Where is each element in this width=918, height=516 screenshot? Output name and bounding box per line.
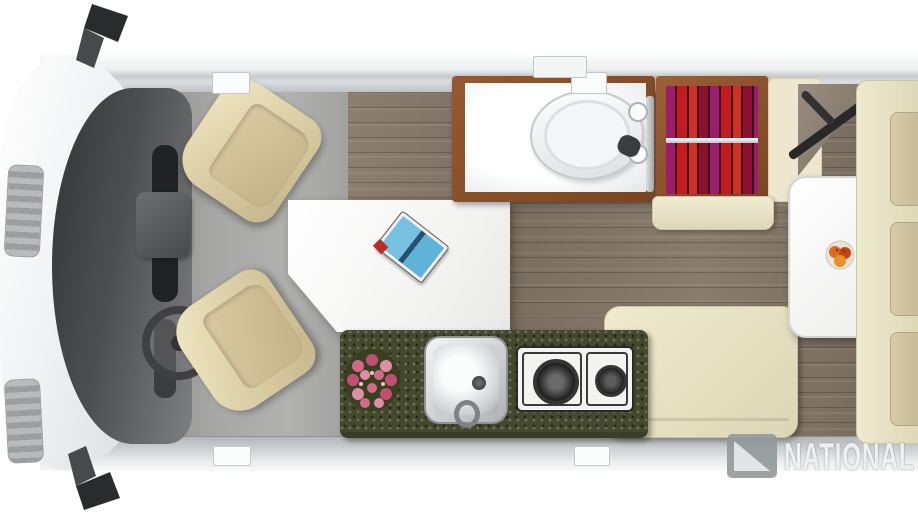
fruit-bowl-icon	[825, 240, 855, 270]
stove-cell	[522, 352, 582, 406]
side-mirror-icon	[70, 4, 140, 90]
flower-bouquet-icon	[343, 348, 401, 412]
faucet-icon	[454, 400, 480, 428]
stove-icon	[516, 346, 634, 412]
burner-right	[595, 365, 627, 397]
door-latch	[213, 446, 251, 466]
sink-icon	[424, 336, 508, 424]
bench-seat-back	[652, 196, 774, 230]
clothes-rail	[666, 138, 758, 143]
burner-left	[533, 359, 579, 405]
sofa-cushion	[890, 222, 918, 316]
door-latch	[574, 446, 610, 466]
rv-floorplan: NATIONAL	[0, 0, 918, 516]
engine-console	[136, 192, 190, 258]
grille-vent-icon	[4, 378, 44, 464]
grille-vent-icon	[4, 164, 45, 258]
watermark-triangle	[734, 441, 770, 471]
side-mirror-icon	[62, 424, 132, 510]
hanging-clothes-icon	[666, 86, 758, 194]
wardrobe	[656, 76, 768, 204]
sofa-cushion	[890, 332, 918, 426]
watermark-text: NATIONAL	[784, 436, 914, 480]
door-latch	[212, 72, 250, 94]
shower-knob-icon	[628, 102, 648, 122]
stove-cell	[586, 352, 628, 406]
roof-vent	[533, 56, 587, 78]
sink-drain	[472, 376, 486, 390]
watermark-logo-icon	[727, 434, 777, 478]
sofa-cushion	[890, 112, 918, 206]
